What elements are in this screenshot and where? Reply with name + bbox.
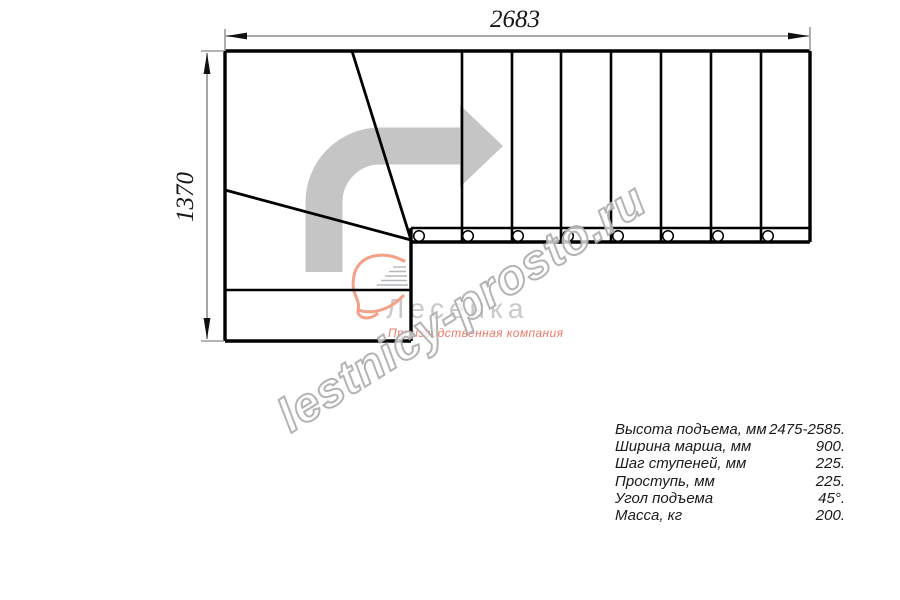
spec-value: 225.	[816, 473, 845, 490]
spec-label: Высота подъема, мм	[615, 421, 767, 438]
spec-value: 900.	[816, 438, 845, 455]
logo-step-lines	[373, 267, 408, 290]
spec-row-step-pitch: Шаг ступеней, мм 225.	[615, 455, 845, 472]
dimension-depth-value: 1370	[172, 147, 200, 247]
staircase-plan-drawing: Лесенка Производственная компания	[0, 0, 900, 600]
spec-label: Масса, кг	[615, 507, 682, 524]
left-dimension-line	[201, 51, 224, 341]
spec-row-angle: Угол подъема 45°.	[615, 490, 845, 507]
spec-value: 45°.	[818, 490, 845, 507]
spec-label: Ширина марша, мм	[615, 438, 751, 455]
spec-label: Угол подъема	[615, 490, 713, 507]
spec-label: Проступь, мм	[615, 473, 715, 490]
spec-value: 225.	[816, 455, 845, 472]
spec-row-march-width: Ширина марша, мм 900.	[615, 438, 845, 455]
spec-row-tread: Проступь, мм 225.	[615, 473, 845, 490]
spec-table: Высота подъема, мм 2475-2585. Ширина мар…	[615, 421, 845, 524]
spec-row-mass: Масса, кг 200.	[615, 507, 845, 524]
spec-value: 2475-2585.	[769, 421, 845, 438]
spec-value: 200.	[816, 507, 845, 524]
baluster-markers	[414, 231, 774, 242]
spec-label: Шаг ступеней, мм	[615, 455, 746, 472]
direction-arrow-icon	[324, 105, 503, 272]
logo-swoosh-icon	[353, 255, 408, 318]
spec-row-height: Высота подъема, мм 2475-2585.	[615, 421, 845, 438]
dimension-width-value: 2683	[455, 6, 575, 34]
